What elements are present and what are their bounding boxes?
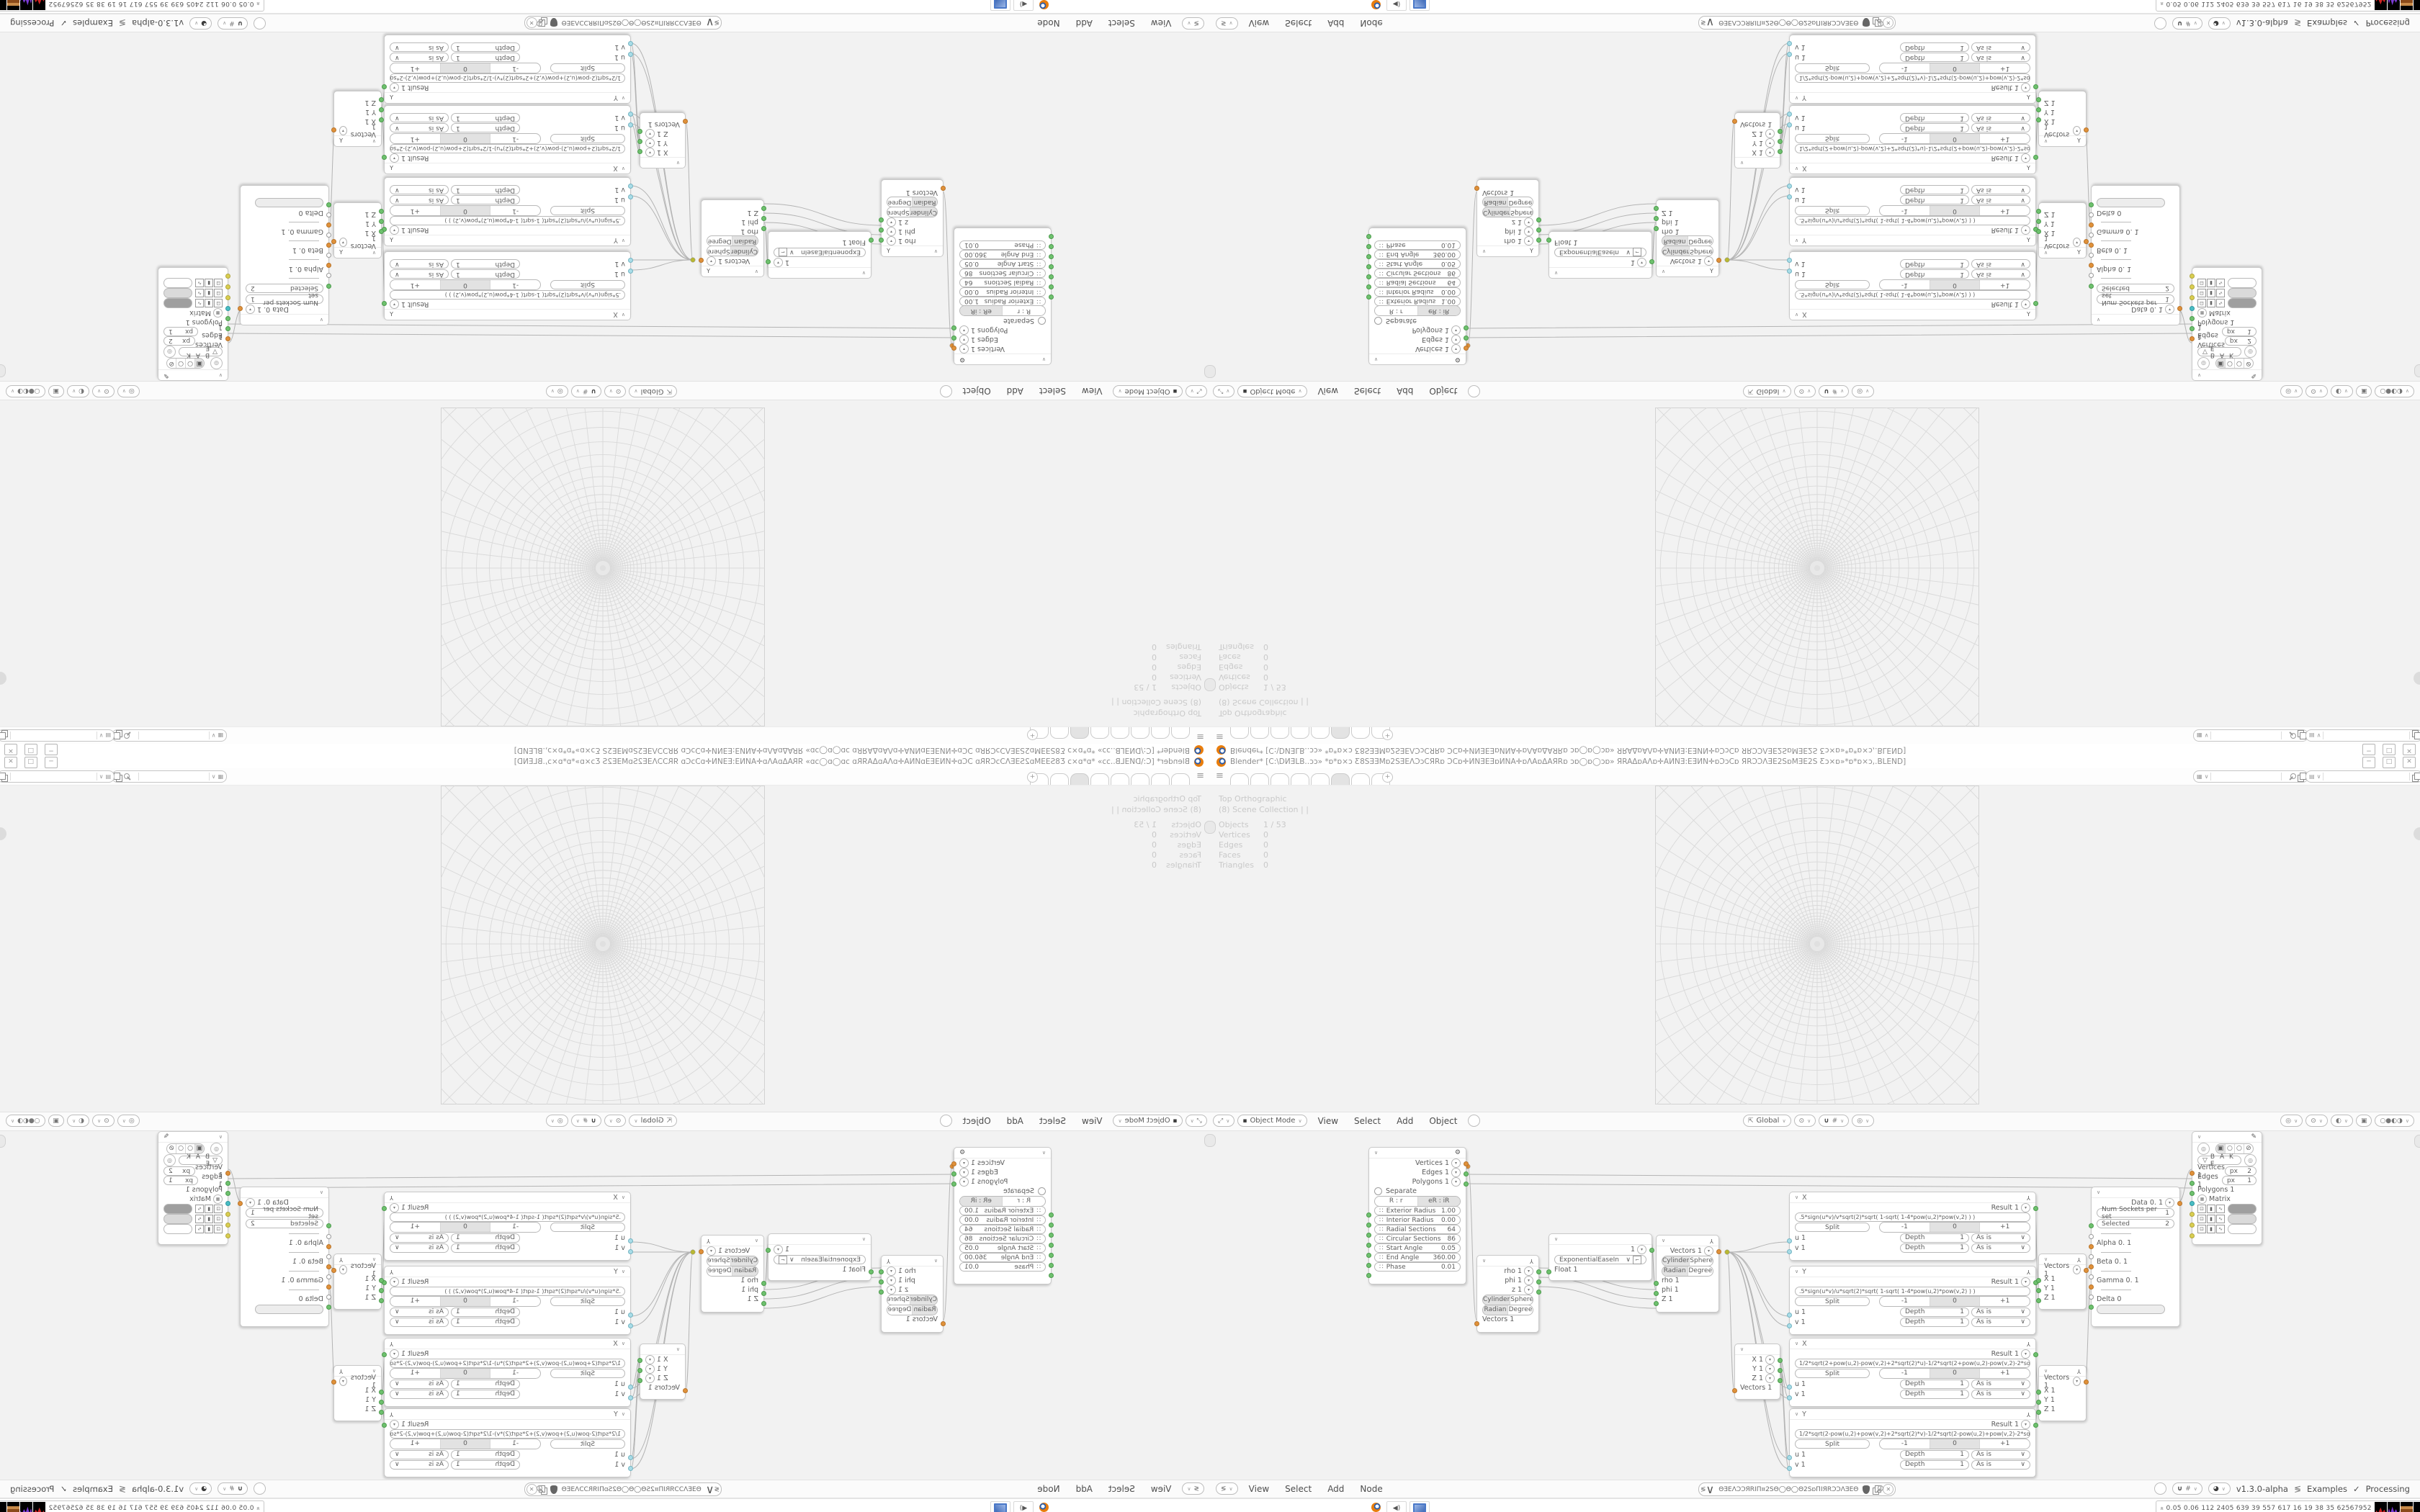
node-row-seg[interactable]: CylinderSphere (1657, 1256, 1718, 1266)
tray-expand-icon[interactable]: « (2158, 1, 2165, 6)
offset-option[interactable]: 0 (1930, 1297, 1980, 1306)
shield-icon[interactable] (550, 19, 557, 27)
easing-dropdown[interactable]: ExponentialEaseIn∨⌐ (774, 1255, 866, 1264)
node-group-breadcrumb[interactable]: ≶∨ ΘƎEΛƆƆЯRIΠ¤2SΘ◯Θ◯Θ2SɒΠIЯRƆƆΛƎEΘ ✕ (524, 1482, 722, 1496)
header-icon-pill[interactable]: ◎∨ (1852, 1115, 1874, 1127)
display-option-icon[interactable]: ▣ (2216, 359, 2225, 369)
swatch-option-icon[interactable]: ∿ (2216, 1225, 2225, 1233)
menu-select[interactable]: Select (1277, 19, 1319, 29)
segment-option[interactable]: Cylinder (731, 247, 758, 256)
shade-bar[interactable] (2228, 1204, 2257, 1214)
workspace-tab-5[interactable] (1311, 773, 1330, 785)
header-icon-pill[interactable]: ◎∨ (2280, 1115, 2303, 1127)
segmented-toggle[interactable]: R : reR : iR (1374, 1196, 1461, 1207)
collapse-chevron-icon[interactable]: ∨ (755, 1238, 758, 1243)
menu-select[interactable]: Select (1346, 1116, 1389, 1126)
display-option-icon[interactable]: ○ (2234, 359, 2244, 369)
formula-field[interactable]: .5*sign(u*v)/v*sqrt(2)*sqrt( 1-sqrt( 1-4… (390, 290, 625, 300)
node-editor[interactable]: ∨⚙Vertices 1▾Edges 1▾Polygons 1▾Separate… (0, 32, 1210, 381)
node-row-pillselect[interactable]: ExponentialEaseIn∨⌐ (768, 1254, 871, 1265)
px-field[interactable]: px1 (163, 327, 198, 336)
workspace-tab-5[interactable] (1090, 773, 1109, 785)
dropdown-circle-icon[interactable]: ▾ (959, 1158, 969, 1168)
offset-toggle[interactable]: -10+1 (1879, 1439, 2030, 1449)
dropdown-circle-icon[interactable]: ▾ (1765, 138, 1775, 148)
asis-dropdown[interactable]: As is∨ (390, 124, 449, 133)
menu-add[interactable]: Add (1319, 1484, 1352, 1494)
segmented-toggle[interactable]: CylinderSphere (1662, 1256, 1713, 1266)
pin-icon[interactable] (1875, 1485, 1883, 1493)
collapse-chevron-icon[interactable]: ∨ (2097, 317, 2100, 323)
dropdown-circle-icon[interactable]: ▾ (645, 1374, 655, 1383)
display-option-icon[interactable]: ○ (2225, 359, 2234, 369)
split-button[interactable]: Split (550, 1369, 625, 1378)
overlap-pill[interactable]: ◕∨ (2208, 17, 2231, 30)
node-row-split[interactable]: Split-10+1 (385, 1296, 630, 1307)
segmented-toggle[interactable]: RadianDegree (887, 197, 938, 208)
display-mode-toggle[interactable]: ▣○○⊘ (2215, 1143, 2254, 1154)
offset-toggle[interactable]: -10+1 (1879, 1222, 2030, 1233)
asis-dropdown[interactable]: As is∨ (390, 196, 449, 205)
depth-field[interactable]: Depth1 (1900, 1450, 1969, 1459)
swatch-option-icon[interactable]: ▮ (205, 299, 213, 307)
offset-option[interactable]: +1 (1979, 1297, 2030, 1306)
menu-view[interactable]: View (1241, 19, 1277, 29)
pin-icon[interactable] (537, 19, 544, 27)
node-row-seg[interactable]: RadianDegree (1477, 197, 1538, 207)
swatch-option-icon[interactable]: ∿ (195, 1215, 204, 1223)
swatch-option-icon[interactable]: ⊡ (2197, 279, 2206, 287)
node-formula-y1[interactable]: ∨YYResult 1▾.5*sign(u*v)/u*sqrt(2)*sqrt(… (1789, 177, 2036, 246)
node-bake[interactable]: ∨✎◎▣○○⊘▽B A K E◎Vertices 1px2Edges 1px1P… (2192, 1131, 2262, 1245)
sidebar-collapse-tab[interactable] (1204, 365, 1210, 378)
node-vectors-decompose-2[interactable]: ∨X 1▾Y 1▾Z 1▾Vectors 1 (640, 1344, 686, 1400)
shade-bar[interactable] (163, 278, 192, 288)
dropdown-circle-icon[interactable]: ▾ (2021, 1277, 2030, 1287)
dropdown-circle-icon[interactable]: ▾ (645, 138, 655, 148)
taskbar-window-icon[interactable] (1410, 0, 1430, 11)
copy-icon[interactable] (115, 732, 122, 739)
node-formula-x1[interactable]: ∨XYResult 1▾.5*sign(u*v)/v*sqrt(2)*sqrt(… (384, 251, 631, 320)
copy-icon[interactable] (2298, 773, 2305, 780)
px-field[interactable]: px2 (2225, 336, 2257, 346)
node-exponential-ease[interactable]: ∨1▾ExponentialEaseIn∨⌐Float 1 (1549, 231, 1652, 279)
segmented-toggle[interactable]: R : reR : iR (959, 1196, 1046, 1207)
asis-dropdown[interactable]: As is∨ (1971, 186, 2030, 195)
close-icon[interactable]: ✕ (1883, 17, 1894, 28)
viewlayer-selector[interactable]: ▤∨ (0, 770, 115, 783)
offset-option[interactable]: 0 (1930, 63, 1980, 73)
taskbar-speaker-icon[interactable]: ◀) (1013, 1501, 1034, 1512)
segment-option[interactable]: Degree (707, 237, 733, 246)
depth-field[interactable]: Depth1 (451, 260, 520, 269)
viewport-3d[interactable]: Top Orthographic (8) Scene Collection | … (0, 786, 1210, 1112)
node-row-split[interactable]: Split-10+1 (385, 1222, 630, 1233)
header-icon-pill[interactable]: ⊙∨ (1794, 1115, 1816, 1127)
minimize-button[interactable]: ─ (2362, 757, 2375, 768)
swatch-option-icon[interactable]: ▮ (205, 1205, 213, 1213)
collapse-chevron-icon[interactable]: ∨ (1740, 160, 1744, 166)
value-field[interactable]: Num Sockets per set1 (2097, 1208, 2174, 1218)
dropdown-circle-icon[interactable]: ▾ (2073, 1265, 2081, 1274)
node-row-split[interactable]: Split-10+1 (1790, 1222, 2035, 1233)
segment-option[interactable]: Sphere (887, 208, 910, 217)
collapse-chevron-icon[interactable]: ∨ (320, 317, 323, 323)
node-row-split[interactable]: Split-10+1 (1790, 205, 2035, 216)
dropdown-circle-icon[interactable]: ▾ (2073, 238, 2081, 247)
segment-option[interactable]: eR : iR (960, 1197, 1003, 1206)
segmented-toggle[interactable]: CylinderSphere (707, 1256, 758, 1266)
scene-selector[interactable]: ▦∨ (112, 729, 227, 742)
menu-object[interactable]: Object (955, 387, 999, 397)
menu-node[interactable]: Node (1352, 19, 1390, 29)
menu-node[interactable]: Node (1029, 19, 1067, 29)
node-formula-x1[interactable]: ∨XYResult 1▾.5*sign(u*v)/v*sqrt(2)*sqrt(… (1789, 251, 2036, 320)
node-row-split[interactable]: Split-10+1 (1790, 1439, 2035, 1449)
dropdown-circle-icon[interactable]: ▾ (390, 153, 399, 163)
overlap-pill[interactable]: ◕∨ (189, 1482, 212, 1495)
collapse-chevron-icon[interactable]: ∨ (1662, 269, 1665, 274)
dropdown-circle-icon[interactable]: ▾ (1637, 258, 1646, 267)
copy-icon[interactable] (1, 773, 8, 780)
hamburger-icon[interactable]: ≡ (1216, 731, 1224, 742)
collapse-chevron-icon[interactable]: ∨ (1374, 356, 1378, 362)
dropdown-circle-icon[interactable]: ▾ (1524, 1266, 1533, 1276)
examples-link[interactable]: Examples (2307, 1484, 2347, 1494)
dropdown-circle-icon[interactable]: ▾ (390, 225, 399, 235)
value-field[interactable]: Num Sockets per set1 (246, 1208, 323, 1218)
global-dropdown[interactable]: ⇱Global∨ (1743, 385, 1791, 397)
node-row-seg[interactable]: RadianDegree (702, 1266, 763, 1276)
offset-option[interactable]: +1 (390, 1223, 441, 1232)
collapse-chevron-icon[interactable]: ∨ (1482, 248, 1486, 254)
viewport-3d[interactable]: Top Orthographic (8) Scene Collection | … (0, 400, 1210, 726)
display-mode-toggle[interactable]: ▣○○⊘ (2215, 359, 2254, 369)
node-formula-y1[interactable]: ∨YYResult 1▾.5*sign(u*v)/u*sqrt(2)*sqrt(… (384, 1266, 631, 1335)
param-field[interactable]: ∷Start Angle0.05 (1374, 259, 1461, 269)
swatch-option-icon[interactable]: ∿ (195, 1205, 204, 1213)
menu-select[interactable]: Select (1101, 19, 1143, 29)
offset-option[interactable]: -1 (490, 1223, 540, 1232)
formula-field[interactable]: 1/2*sqrt(2+pow(u,2)-pow(v,2)+2*sqrt(2)*u… (390, 1359, 625, 1368)
swatch-option-icon[interactable]: ▮ (205, 1215, 213, 1223)
depth-field[interactable]: Depth1 (451, 1390, 520, 1399)
segment-option[interactable]: Radian (733, 237, 758, 246)
node-data-sockets[interactable]: ∨Data 0. 1▾Num Sockets per set1Selected2… (240, 185, 329, 325)
collapse-chevron-icon[interactable]: ∨ (1482, 1258, 1486, 1264)
menu-node[interactable]: Node (1352, 1484, 1390, 1494)
asis-dropdown[interactable]: As is∨ (1971, 1380, 2030, 1389)
offset-option[interactable]: +1 (390, 1297, 441, 1306)
collapse-chevron-icon[interactable]: ∨ (1795, 1341, 1798, 1346)
shade-bar[interactable] (163, 298, 192, 308)
mode-selector[interactable]: ▪Object Mode∨ (1113, 385, 1182, 397)
workspace-tab-4[interactable] (1291, 727, 1309, 739)
segment-option[interactable]: Radian (913, 1305, 937, 1315)
collapse-chevron-icon[interactable]: ∨ (862, 1236, 866, 1242)
offset-option[interactable]: +1 (1979, 206, 2030, 215)
node-row-seg[interactable]: RadianDegree (882, 197, 943, 207)
examples-link[interactable]: Examples (73, 1484, 113, 1494)
segment-option[interactable]: Cylinder (910, 208, 937, 217)
tray-expand-icon[interactable]: « (255, 1506, 262, 1511)
menu-add[interactable]: Add (999, 387, 1031, 397)
param-field[interactable]: ∷Exterior Radius1.00 (959, 1206, 1046, 1215)
tray-expand-icon[interactable]: « (255, 1, 262, 6)
node-row-seg[interactable]: RadianDegree (702, 236, 763, 246)
depth-field[interactable]: Depth1 (1900, 43, 1969, 53)
node-row-split[interactable]: Split-10+1 (385, 133, 630, 144)
copy-icon[interactable] (1, 732, 8, 739)
swatch-option-icon[interactable]: ∿ (195, 1225, 204, 1233)
collapse-chevron-icon[interactable]: ∨ (1795, 166, 1798, 171)
asis-dropdown[interactable]: As is∨ (1971, 43, 2030, 53)
dropdown-circle-icon[interactable]: ▾ (1524, 1276, 1533, 1285)
menu-view[interactable]: View (1143, 1484, 1179, 1494)
param-field[interactable]: ∷Interior Radius0.00 (1374, 1215, 1461, 1225)
segment-option[interactable]: R : r (1003, 307, 1046, 316)
hamburger-icon[interactable]: ≡ (1196, 770, 1204, 781)
split-button[interactable]: Split (1795, 1297, 1870, 1306)
display-option-icon[interactable]: ⊘ (2244, 359, 2253, 369)
node-editor[interactable]: ∨⚙Vertices 1▾Edges 1▾Polygons 1▾Separate… (0, 1131, 1210, 1480)
examples-link[interactable]: Examples (2307, 19, 2347, 29)
easing-dropdown[interactable]: ExponentialEaseIn∨⌐ (1554, 248, 1646, 257)
shade-bar[interactable] (2228, 1224, 2257, 1234)
node-formula-x2[interactable]: ∨XYResult 1▾1/2*sqrt(2+pow(u,2)-pow(v,2)… (1789, 1338, 2036, 1407)
px-field[interactable]: px2 (163, 336, 195, 346)
offset-option[interactable]: +1 (1979, 1439, 2030, 1449)
offset-option[interactable]: -1 (490, 1369, 540, 1378)
hamburger-icon[interactable]: ≡ (1216, 770, 1224, 781)
node-bake[interactable]: ∨✎◎▣○○⊘▽B A K E◎Vertices 1px2Edges 1px1P… (158, 1131, 228, 1245)
node-row-split[interactable]: Split-10+1 (1790, 1368, 2035, 1379)
checkbox-icon[interactable] (1374, 317, 1382, 325)
dropdown-circle-icon[interactable]: ▾ (1524, 227, 1533, 236)
swatch-option-icon[interactable]: ∿ (195, 279, 204, 287)
segment-option[interactable]: R : r (1003, 1197, 1046, 1206)
segment-option[interactable]: Cylinder (1662, 1256, 1689, 1266)
offset-toggle[interactable]: -10+1 (390, 63, 541, 73)
preview-toggle-icon[interactable]: ◎ (2197, 358, 2210, 370)
collapse-chevron-icon[interactable]: ∨ (219, 372, 223, 378)
node-vectors-combine-3[interactable]: ∨YVectors 1▾X 1Y 1Z 1 (2038, 1254, 2087, 1310)
workspace-tab-6[interactable] (1070, 773, 1089, 785)
dropdown-circle-icon[interactable]: ▾ (1451, 1158, 1461, 1168)
close-icon[interactable]: ✕ (526, 17, 537, 28)
dropdown-circle-icon[interactable]: ▾ (390, 1420, 399, 1429)
swatch-option-icon[interactable]: ⊡ (214, 289, 223, 297)
dropdown-circle-icon[interactable]: ▾ (1765, 1374, 1775, 1383)
offset-option[interactable]: +1 (390, 206, 441, 215)
menu-view[interactable]: View (1310, 1116, 1346, 1126)
node-formula-x2[interactable]: ∨XYResult 1▾1/2*sqrt(2+pow(u,2)-pow(v,2)… (384, 1338, 631, 1407)
asis-dropdown[interactable]: As is∨ (1971, 1318, 2030, 1327)
segmented-toggle[interactable]: RadianDegree (1482, 197, 1533, 208)
display-option-icon[interactable]: ▣ (195, 1144, 204, 1153)
header-icon-pill[interactable]: ⊙∨ (604, 1115, 627, 1127)
segment-option[interactable]: Degree (1507, 1305, 1533, 1315)
depth-field[interactable]: Depth1 (1900, 114, 1969, 123)
value-field[interactable]: Num Sockets per set1 (246, 294, 323, 304)
viewport-3d[interactable]: Top Orthographic (8) Scene Collection | … (1210, 786, 2420, 1112)
node-row-seg[interactable]: RadianDegree (1657, 1266, 1718, 1276)
workspace-tab-3[interactable] (1270, 727, 1289, 739)
display-option-icon[interactable]: ⊘ (2244, 1144, 2253, 1153)
close-icon[interactable]: ✕ (1883, 1484, 1894, 1495)
dropdown-circle-icon[interactable]: ▾ (707, 1246, 716, 1256)
segmented-toggle[interactable]: R : reR : iR (1374, 306, 1461, 317)
collapse-chevron-icon[interactable]: ∨ (372, 138, 376, 144)
offset-toggle[interactable]: -10+1 (390, 1296, 541, 1307)
taskbar-window-icon[interactable] (990, 1501, 1010, 1512)
asis-dropdown[interactable]: As is∨ (1971, 1460, 2030, 1470)
segment-option[interactable]: eR : iR (1417, 1197, 1461, 1206)
segment-option[interactable]: eR : iR (1417, 307, 1461, 316)
menu-add[interactable]: Add (1068, 1484, 1101, 1494)
offset-option[interactable]: -1 (1880, 1223, 1930, 1232)
workspace-tab-6[interactable] (1331, 773, 1350, 785)
collapse-chevron-icon[interactable]: ∨ (1795, 1269, 1798, 1274)
dropdown-circle-icon[interactable]: ▾ (390, 1277, 399, 1287)
offset-option[interactable]: 0 (441, 1369, 491, 1378)
segmented-toggle[interactable]: RadianDegree (707, 236, 758, 247)
shield-icon[interactable] (1863, 19, 1870, 27)
taskbar-window-icon[interactable] (1410, 1501, 1430, 1512)
collapse-chevron-icon[interactable]: ∨ (676, 160, 680, 166)
segment-option[interactable]: Degree (887, 198, 913, 207)
node-row-seg[interactable]: CylinderSphere (702, 246, 763, 256)
preview-toggle-icon[interactable]: ◎ (210, 1143, 223, 1155)
workspace-tab-4[interactable] (1111, 727, 1129, 739)
text-field[interactable] (255, 1305, 323, 1314)
offset-option[interactable]: -1 (490, 1439, 540, 1449)
split-button[interactable]: Split (1795, 1439, 1870, 1449)
offset-option[interactable]: -1 (1880, 280, 1930, 289)
shade-bar[interactable] (163, 288, 192, 298)
copy-icon[interactable] (2412, 773, 2419, 780)
swatch-option-icon[interactable]: ⊡ (2197, 1205, 2206, 1213)
node-cylinder-decompose[interactable]: ∨Yrho 1▾phi 1▾z 1▾CylinderSphereRadianDe… (881, 1255, 944, 1333)
segment-option[interactable]: Cylinder (1483, 1295, 1510, 1305)
offset-option[interactable]: -1 (1880, 63, 1930, 73)
dropdown-circle-icon[interactable]: ▾ (2021, 1203, 2030, 1212)
editor-type-button[interactable]: ⤢∨ (1213, 385, 1234, 397)
node-vectors-decompose-2[interactable]: ∨X 1▾Y 1▾Z 1▾Vectors 1 (640, 112, 686, 168)
collapse-chevron-icon[interactable]: ∨ (219, 1134, 223, 1140)
dropdown-circle-icon[interactable]: ▾ (2021, 225, 2030, 235)
node-row-seg[interactable]: R : reR : iR (1369, 306, 1466, 316)
depth-field[interactable]: Depth1 (451, 114, 520, 123)
depth-field[interactable]: Depth1 (451, 270, 520, 279)
scene-selector[interactable]: ▦∨ (2193, 770, 2308, 783)
node-cylinder-decompose[interactable]: ∨Yrho 1▾phi 1▾z 1▾CylinderSphereRadianDe… (881, 179, 944, 257)
maximize-button[interactable]: □ (2383, 757, 2396, 768)
navigation-gizmo-icon[interactable] (2414, 827, 2420, 840)
transform-widget-button[interactable] (940, 385, 952, 397)
segmented-toggle[interactable]: CylinderSphere (887, 207, 938, 218)
node-vectors-combine-1[interactable]: ∨YVectors 1▾CylinderSphereRadianDegreerh… (701, 199, 764, 277)
offset-toggle[interactable]: -10+1 (390, 1439, 541, 1449)
segmented-toggle[interactable]: R : reR : iR (959, 306, 1046, 317)
param-field[interactable]: ∷Circular Sections86 (1374, 1234, 1461, 1243)
collapse-chevron-icon[interactable]: ∨ (2097, 1189, 2100, 1195)
depth-field[interactable]: Depth1 (1900, 196, 1969, 205)
dropdown-circle-icon[interactable]: ▾ (1524, 1285, 1533, 1295)
dropdown-circle-icon[interactable]: ▾ (390, 83, 399, 92)
split-button[interactable]: Split (1795, 134, 1870, 143)
swatch-option-icon[interactable]: ⊡ (214, 279, 223, 287)
segment-option[interactable]: Sphere (1510, 1295, 1533, 1305)
close-icon[interactable]: ✕ (526, 1484, 537, 1495)
dropdown-circle-icon[interactable]: ▾ (339, 1377, 347, 1386)
offset-option[interactable]: +1 (1979, 63, 2030, 73)
segment-option[interactable]: Radian (1483, 198, 1507, 207)
param-field[interactable]: ∷Circular Sections86 (959, 1234, 1046, 1243)
collapse-chevron-icon[interactable]: ∨ (1795, 1411, 1798, 1417)
swatch-option-icon[interactable]: ▮ (2207, 1205, 2215, 1213)
split-button[interactable]: Split (1795, 280, 1870, 289)
dropdown-circle-icon[interactable]: ▾ (645, 1355, 655, 1364)
node-vectors-combine-1[interactable]: ∨YVectors 1▾CylinderSphereRadianDegreerh… (1656, 199, 1719, 277)
segmented-toggle[interactable]: CylinderSphere (887, 1295, 938, 1305)
pin-icon[interactable] (125, 732, 132, 740)
depth-field[interactable]: Depth1 (451, 1233, 520, 1243)
display-option-icon[interactable]: ⊘ (167, 1144, 176, 1153)
add-workspace-button[interactable]: + (1382, 729, 1393, 740)
viewlayer-selector[interactable]: ▤∨ (2305, 729, 2420, 742)
node-row-pillselect[interactable]: ExponentialEaseIn∨⌐ (1549, 247, 1652, 258)
value-field[interactable]: Selected2 (246, 1219, 323, 1228)
workspace-tab-6[interactable] (1070, 727, 1089, 739)
split-button[interactable]: Split (550, 206, 625, 215)
asis-dropdown[interactable]: As is∨ (390, 1233, 449, 1243)
header-icon-pill[interactable]: ◎∨ (546, 1115, 568, 1127)
asis-dropdown[interactable]: As is∨ (390, 1308, 449, 1317)
depth-field[interactable]: Depth1 (451, 186, 520, 195)
px-field[interactable]: px2 (2225, 1166, 2257, 1176)
swatch-option-icon[interactable]: ∿ (195, 299, 204, 307)
formula-field[interactable]: 1/2*sqrt(2+pow(u,2)-pow(v,2)+2*sqrt(2)*u… (1795, 1359, 2030, 1368)
workspace-tab-5[interactable] (1090, 727, 1109, 739)
collapse-chevron-icon[interactable]: ∨ (622, 1269, 625, 1274)
asis-dropdown[interactable]: As is∨ (390, 186, 449, 195)
value-field[interactable]: Num Sockets per set1 (2097, 294, 2174, 304)
offset-toggle[interactable]: -10+1 (1879, 133, 2030, 144)
overlap-pill[interactable]: ◕∨ (189, 17, 212, 30)
param-field[interactable]: ∷Interior Radius0.00 (959, 287, 1046, 297)
menu-add[interactable]: Add (1319, 19, 1352, 29)
shade-bar[interactable] (163, 1204, 192, 1214)
header-icon-pill[interactable]: ◐∨ (2331, 385, 2353, 397)
collapse-chevron-icon[interactable]: ∨ (1374, 1150, 1378, 1156)
node-formula-x2[interactable]: ∨XYResult 1▾1/2*sqrt(2+pow(u,2)-pow(v,2)… (384, 105, 631, 174)
collapse-chevron-icon[interactable]: ∨ (622, 95, 625, 101)
node-formula-x1[interactable]: ∨XYResult 1▾.5*sign(u*v)/v*sqrt(2)*sqrt(… (1789, 1192, 2036, 1261)
asis-dropdown[interactable]: As is∨ (390, 270, 449, 279)
node-vectors-combine-1[interactable]: ∨YVectors 1▾CylinderSphereRadianDegreerh… (701, 1235, 764, 1313)
segment-option[interactable]: Degree (1688, 237, 1713, 246)
copy-icon[interactable] (2412, 732, 2419, 739)
global-dropdown[interactable]: ⇱Global∨ (629, 385, 677, 397)
dropdown-circle-icon[interactable]: ▾ (1765, 129, 1775, 138)
checkbox-icon[interactable] (1038, 317, 1046, 325)
asis-dropdown[interactable]: As is∨ (1971, 124, 2030, 133)
swatch-option-icon[interactable]: ∿ (195, 289, 204, 297)
dropdown-circle-icon[interactable]: ▾ (2021, 1349, 2030, 1359)
node-editor-type-button[interactable]: ≶∨ (1182, 1482, 1204, 1495)
collapse-chevron-icon[interactable]: ∨ (1795, 1194, 1798, 1200)
